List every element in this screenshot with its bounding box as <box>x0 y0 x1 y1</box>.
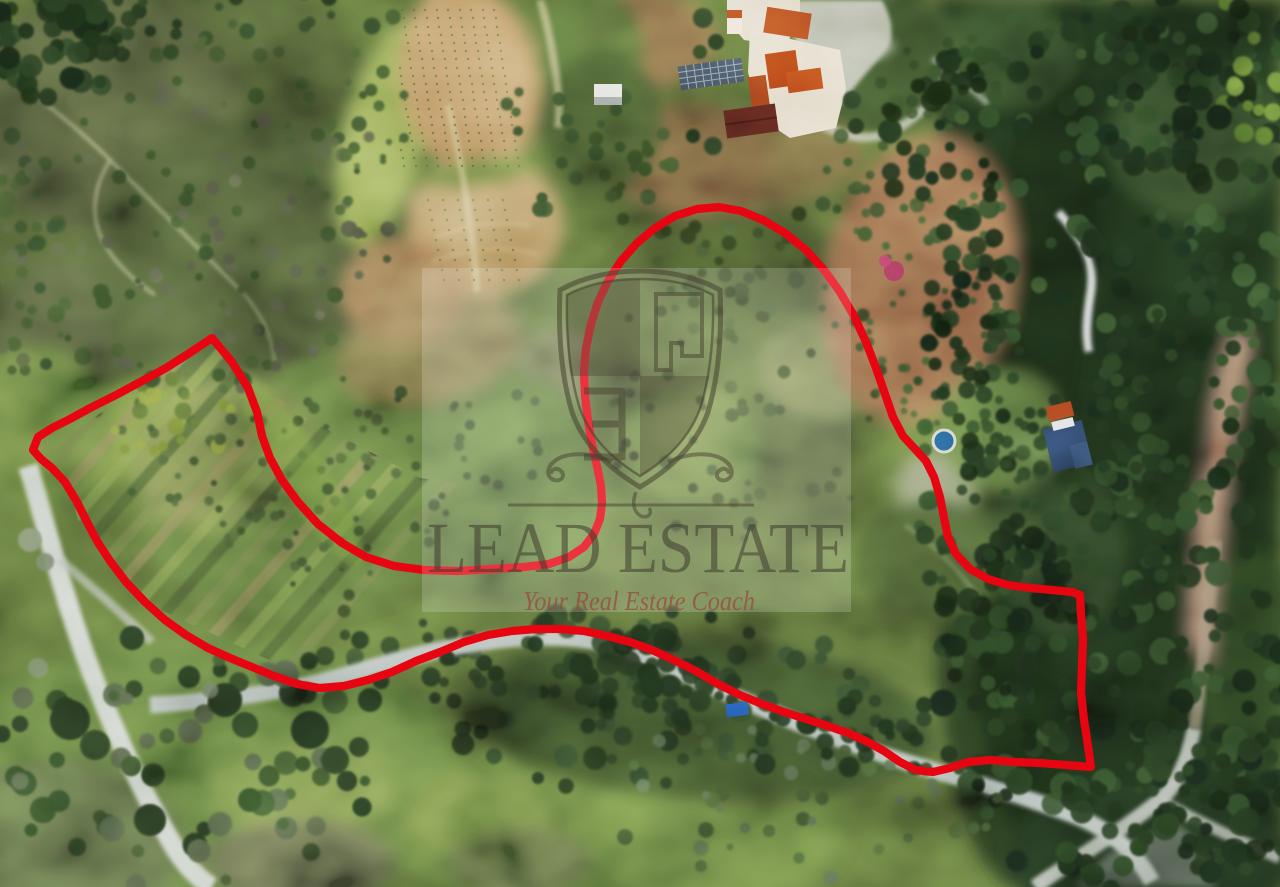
svg-text:Your Real Estate Coach: Your Real Estate Coach <box>523 586 755 616</box>
svg-text:LEAD ESTATE: LEAD ESTATE <box>427 508 849 588</box>
